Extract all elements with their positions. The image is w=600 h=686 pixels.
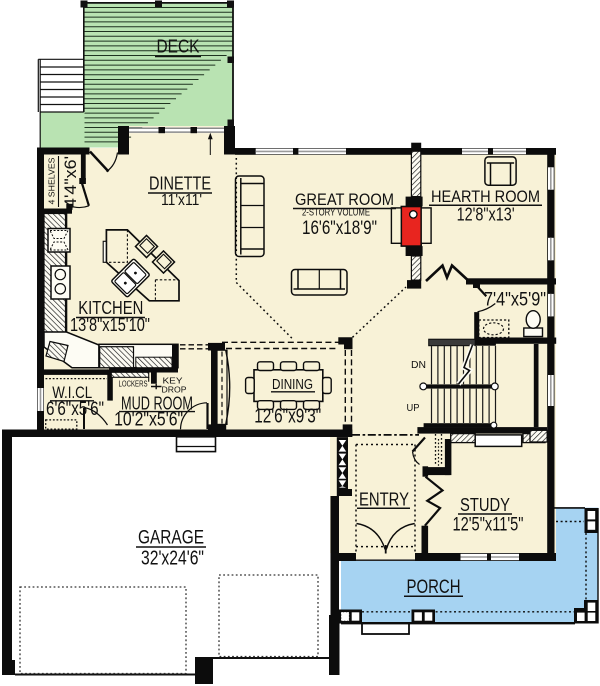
svg-text:DINETTE: DINETTE: [149, 174, 211, 194]
svg-text:12'6"x9'3": 12'6"x9'3": [254, 406, 321, 428]
svg-text:12'5"x11'5": 12'5"x11'5": [453, 514, 524, 535]
svg-text:GARAGE: GARAGE: [138, 528, 204, 549]
svg-text:DROP: DROP: [162, 384, 187, 394]
svg-text:10'2"x5'6": 10'2"x5'6": [114, 410, 183, 431]
svg-text:13'8"x15'10": 13'8"x15'10": [70, 314, 150, 335]
svg-text:UP: UP: [407, 402, 420, 414]
svg-text:32'x24'6": 32'x24'6": [141, 548, 204, 570]
svg-text:DN: DN: [411, 359, 426, 371]
svg-text:16'6"x18'9": 16'6"x18'9": [302, 218, 377, 239]
svg-text:STUDY: STUDY: [460, 495, 510, 515]
svg-text:7'4"x5'9": 7'4"x5'9": [484, 290, 546, 311]
svg-text:LOCKERS: LOCKERS: [119, 379, 148, 388]
svg-text:PORCH: PORCH: [407, 577, 461, 598]
svg-text:4'4"x6': 4'4"x6': [61, 156, 80, 208]
svg-text:DECK: DECK: [157, 37, 200, 57]
svg-text:6'6"x5'6": 6'6"x5'6": [46, 399, 104, 420]
svg-text:GREAT ROOM: GREAT ROOM: [295, 190, 394, 209]
svg-text:DINING: DINING: [272, 376, 313, 393]
svg-text:HEARTH ROOM: HEARTH ROOM: [431, 187, 540, 206]
svg-text:12'8"x13': 12'8"x13': [457, 204, 515, 224]
svg-text:11'x11': 11'x11': [161, 192, 202, 209]
svg-text:ENTRY: ENTRY: [359, 489, 409, 509]
svg-text:4 SHELVES: 4 SHELVES: [47, 157, 57, 204]
